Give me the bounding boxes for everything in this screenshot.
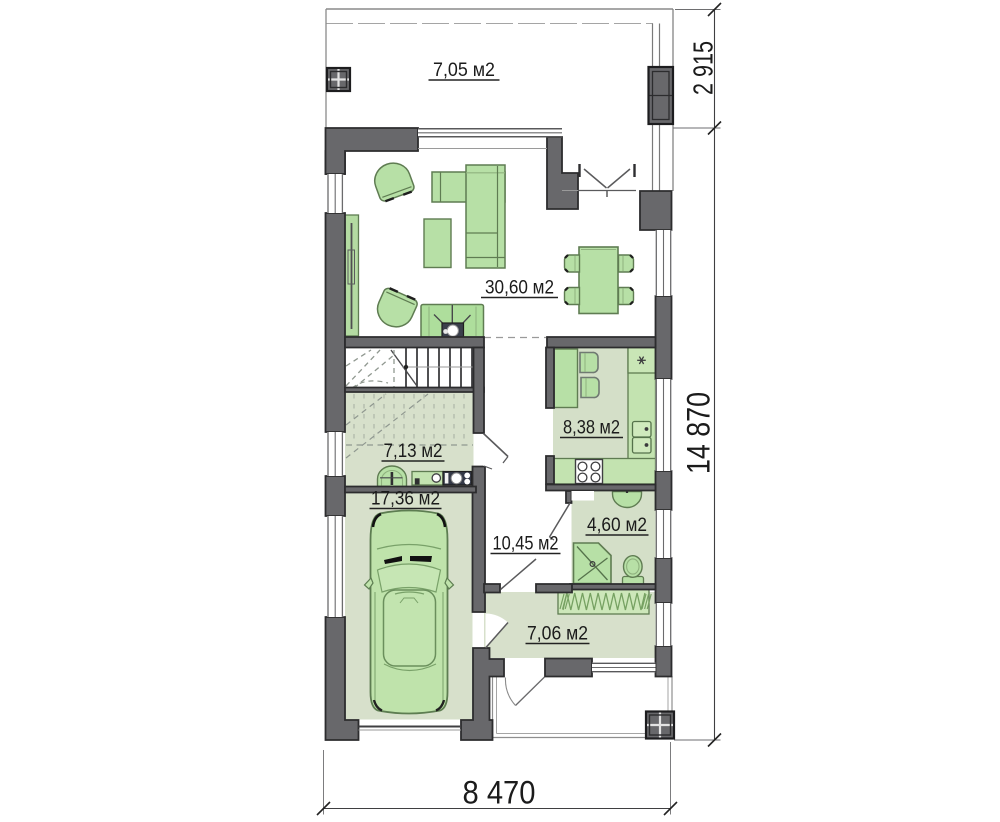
svg-text:8,38 м2: 8,38 м2: [563, 418, 620, 439]
svg-text:17,36 м2: 17,36 м2: [371, 489, 440, 510]
svg-text:7,05 м2: 7,05 м2: [433, 60, 495, 81]
svg-text:7,06 м2: 7,06 м2: [527, 624, 588, 645]
svg-text:7,13 м2: 7,13 м2: [384, 441, 443, 462]
svg-text:8 470: 8 470: [463, 775, 536, 811]
svg-text:2 915: 2 915: [688, 41, 719, 95]
svg-text:10,45 м2: 10,45 м2: [493, 534, 559, 555]
svg-text:4,60 м2: 4,60 м2: [587, 515, 647, 536]
svg-text:30,60 м2: 30,60 м2: [485, 278, 554, 299]
svg-text:14 870: 14 870: [681, 392, 717, 474]
